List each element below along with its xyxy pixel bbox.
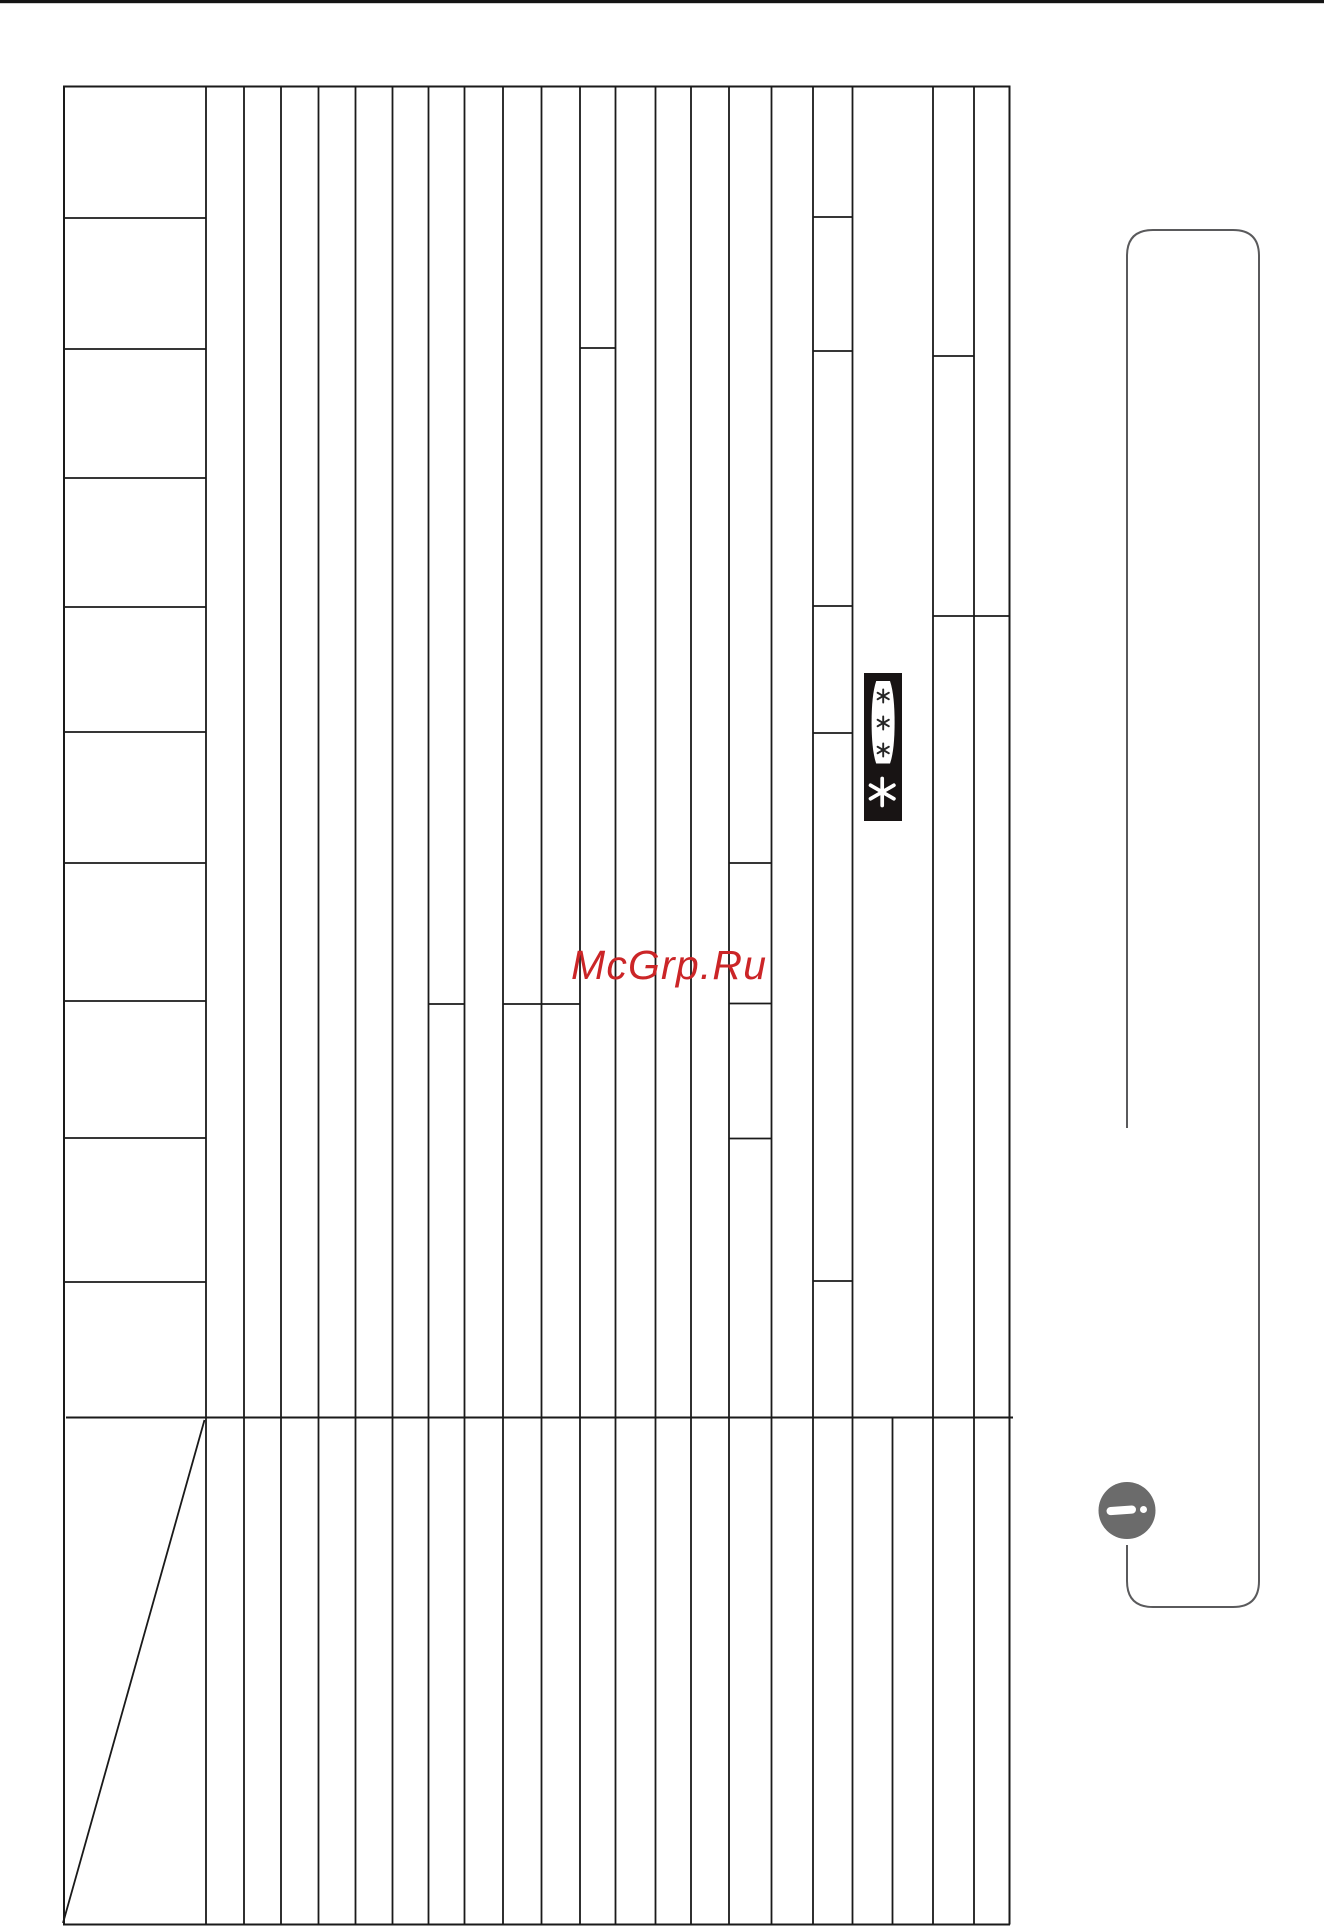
svg-text:McGrp.Ru: McGrp.Ru bbox=[571, 942, 766, 988]
